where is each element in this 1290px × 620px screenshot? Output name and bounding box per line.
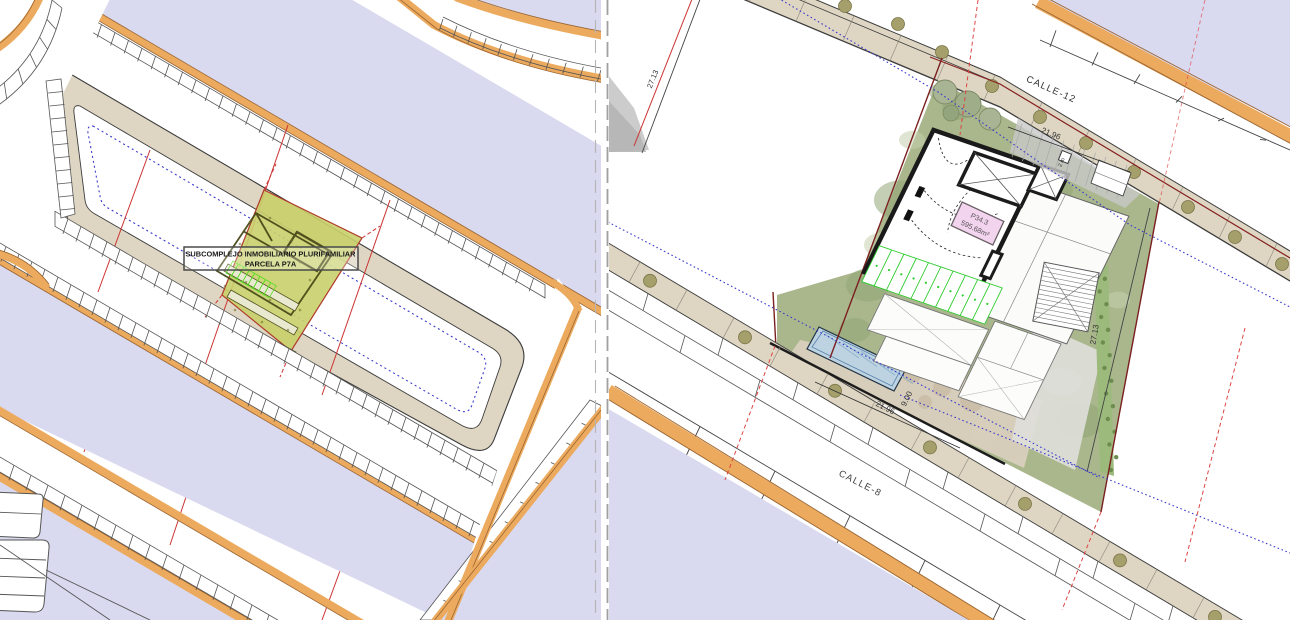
svg-text:PARCELA P7A: PARCELA P7A	[245, 260, 297, 269]
svg-text:SUBCOMPLEJO INMOBILIARIO PLURI: SUBCOMPLEJO INMOBILIARIO PLURIFAMILIAR	[186, 250, 357, 259]
